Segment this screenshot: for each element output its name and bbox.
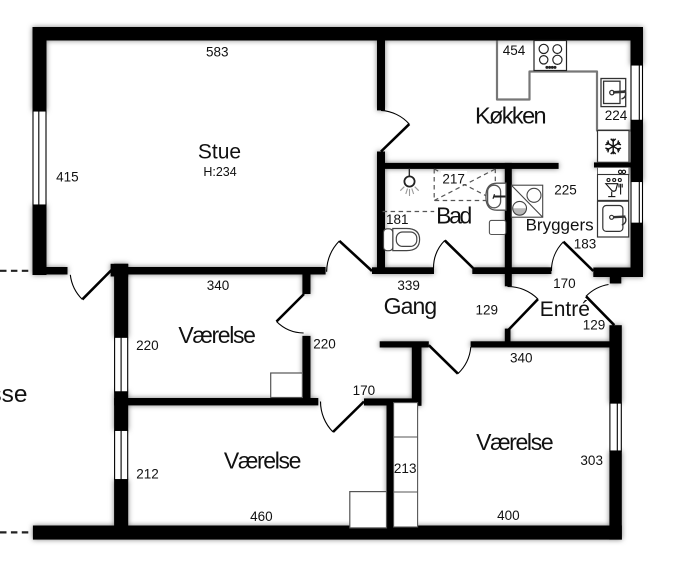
svg-text:183: 183 (574, 237, 597, 252)
svg-text:460: 460 (250, 509, 273, 524)
svg-text:340: 340 (207, 278, 230, 293)
svg-text:213: 213 (394, 461, 417, 476)
svg-text:H:234: H:234 (203, 165, 236, 179)
svg-text:340: 340 (510, 351, 533, 366)
svg-text:Køkken: Køkken (475, 102, 546, 128)
svg-text:181: 181 (386, 212, 409, 227)
svg-text:Bad: Bad (436, 203, 471, 229)
svg-text:Terrasse: Terrasse (0, 381, 28, 408)
svg-text:129: 129 (583, 318, 606, 333)
svg-text:224: 224 (605, 108, 628, 123)
svg-text:170: 170 (553, 276, 576, 291)
svg-text:220: 220 (136, 338, 159, 353)
svg-text:Værelse: Værelse (224, 448, 301, 474)
svg-text:212: 212 (136, 467, 159, 482)
svg-text:400: 400 (497, 508, 520, 523)
svg-text:303: 303 (580, 453, 603, 468)
svg-text:225: 225 (554, 183, 577, 198)
svg-text:Stue: Stue (198, 140, 241, 163)
svg-text:415: 415 (56, 170, 79, 185)
svg-text:Bryggers: Bryggers (526, 216, 594, 235)
svg-text:129: 129 (476, 302, 499, 317)
svg-text:Værelse: Værelse (178, 322, 255, 348)
svg-text:Gang: Gang (384, 293, 437, 319)
svg-text:170: 170 (353, 383, 376, 398)
svg-text:583: 583 (206, 45, 229, 60)
svg-text:217: 217 (442, 172, 465, 187)
svg-text:Værelse: Værelse (476, 429, 553, 455)
svg-text:339: 339 (397, 278, 420, 293)
svg-text:220: 220 (313, 337, 336, 352)
svg-text:454: 454 (503, 43, 526, 58)
